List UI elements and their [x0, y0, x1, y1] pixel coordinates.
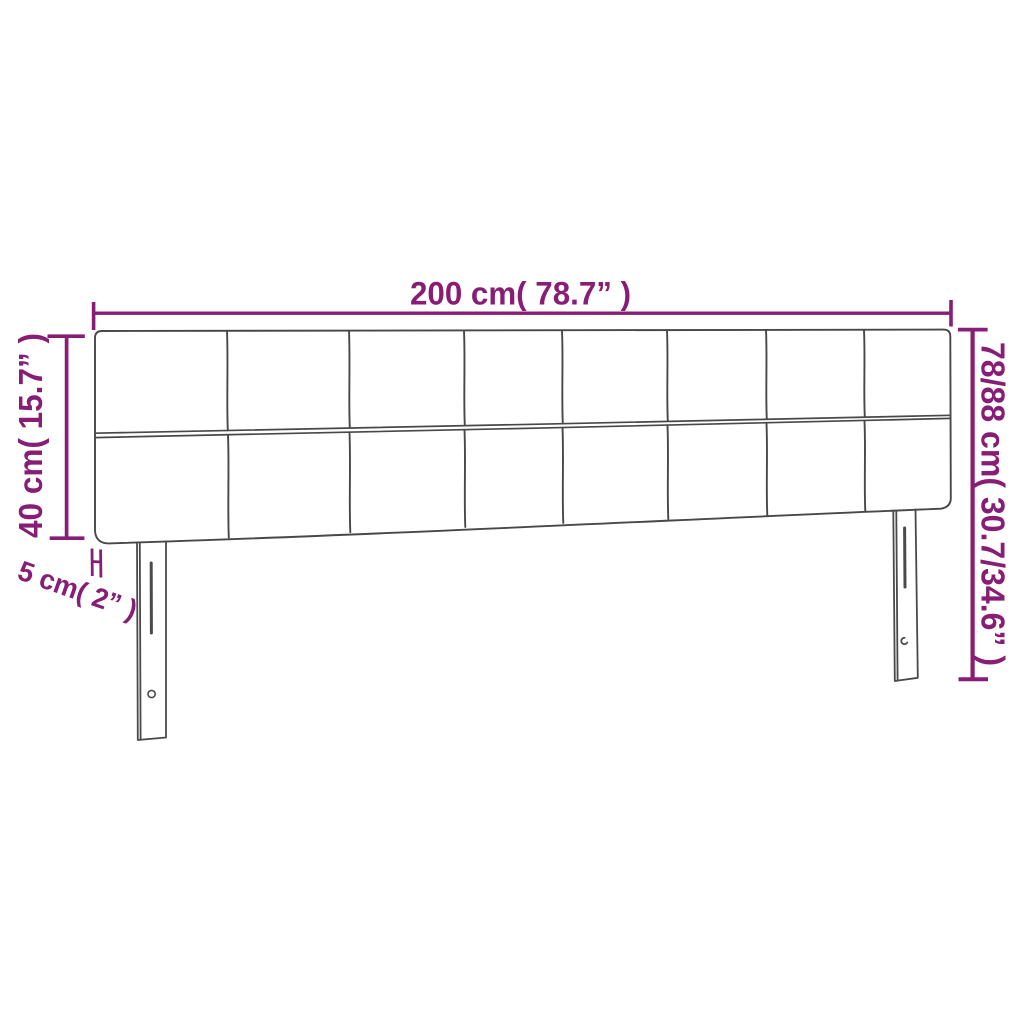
svg-text:40 cm( 15.7” ): 40 cm( 15.7” ): [12, 333, 49, 538]
svg-text:200 cm( 78.7” ): 200 cm( 78.7” ): [410, 276, 631, 312]
svg-text:78/88 cm( 30.7/34.6” ): 78/88 cm( 30.7/34.6” ): [975, 342, 1012, 666]
